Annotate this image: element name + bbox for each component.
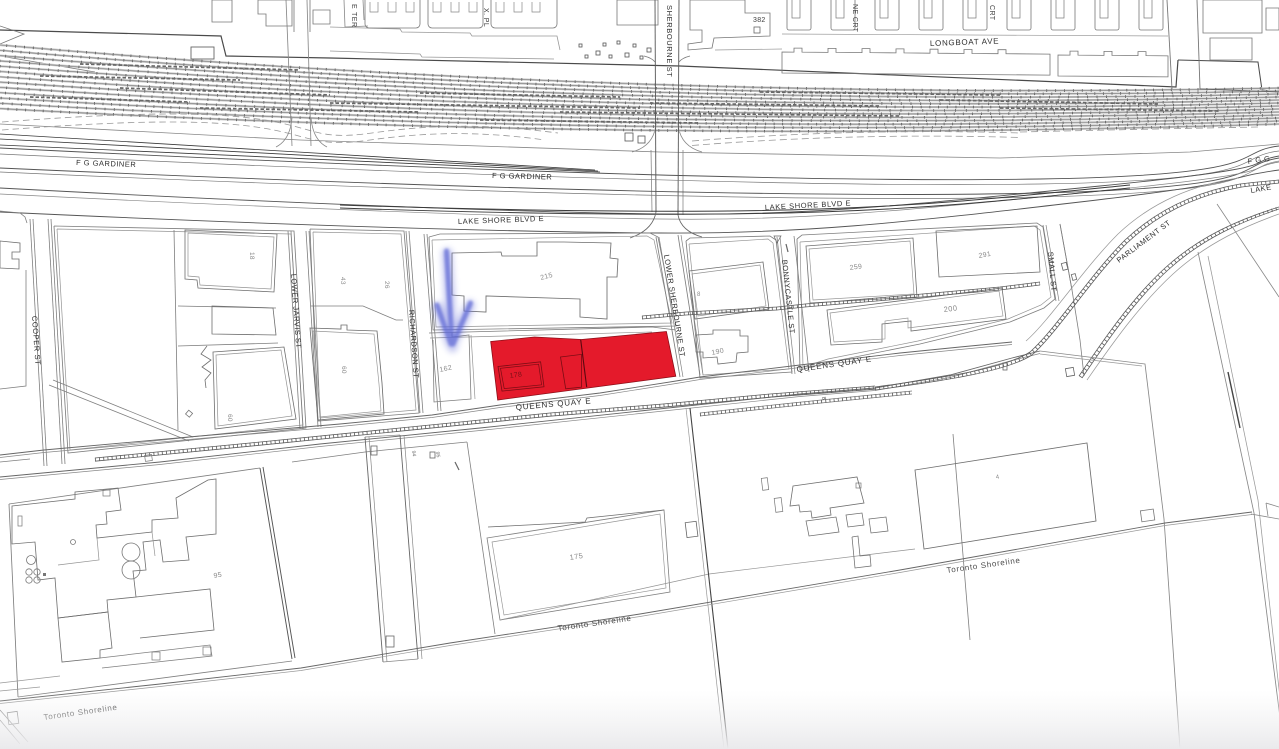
svg-text:60: 60: [226, 414, 233, 422]
svg-text:NE CRT: NE CRT: [851, 4, 858, 33]
svg-text:43: 43: [339, 277, 346, 285]
svg-text:94: 94: [410, 450, 417, 457]
svg-text:8: 8: [697, 292, 701, 298]
svg-text:18: 18: [248, 252, 255, 260]
svg-text:E: E: [350, 4, 357, 9]
svg-text:CRT: CRT: [988, 5, 995, 21]
svg-text:26: 26: [383, 281, 390, 289]
svg-text:382: 382: [753, 17, 766, 24]
svg-text:X. PL: X. PL: [482, 8, 489, 27]
svg-text:TER: TER: [350, 12, 357, 28]
svg-text:SHERBOURNE ST: SHERBOURNE ST: [665, 5, 674, 77]
svg-text:200: 200: [943, 303, 958, 314]
svg-text:95: 95: [213, 572, 222, 580]
svg-text:F G GARDINER: F G GARDINER: [492, 171, 552, 182]
svg-text:60: 60: [340, 366, 347, 374]
